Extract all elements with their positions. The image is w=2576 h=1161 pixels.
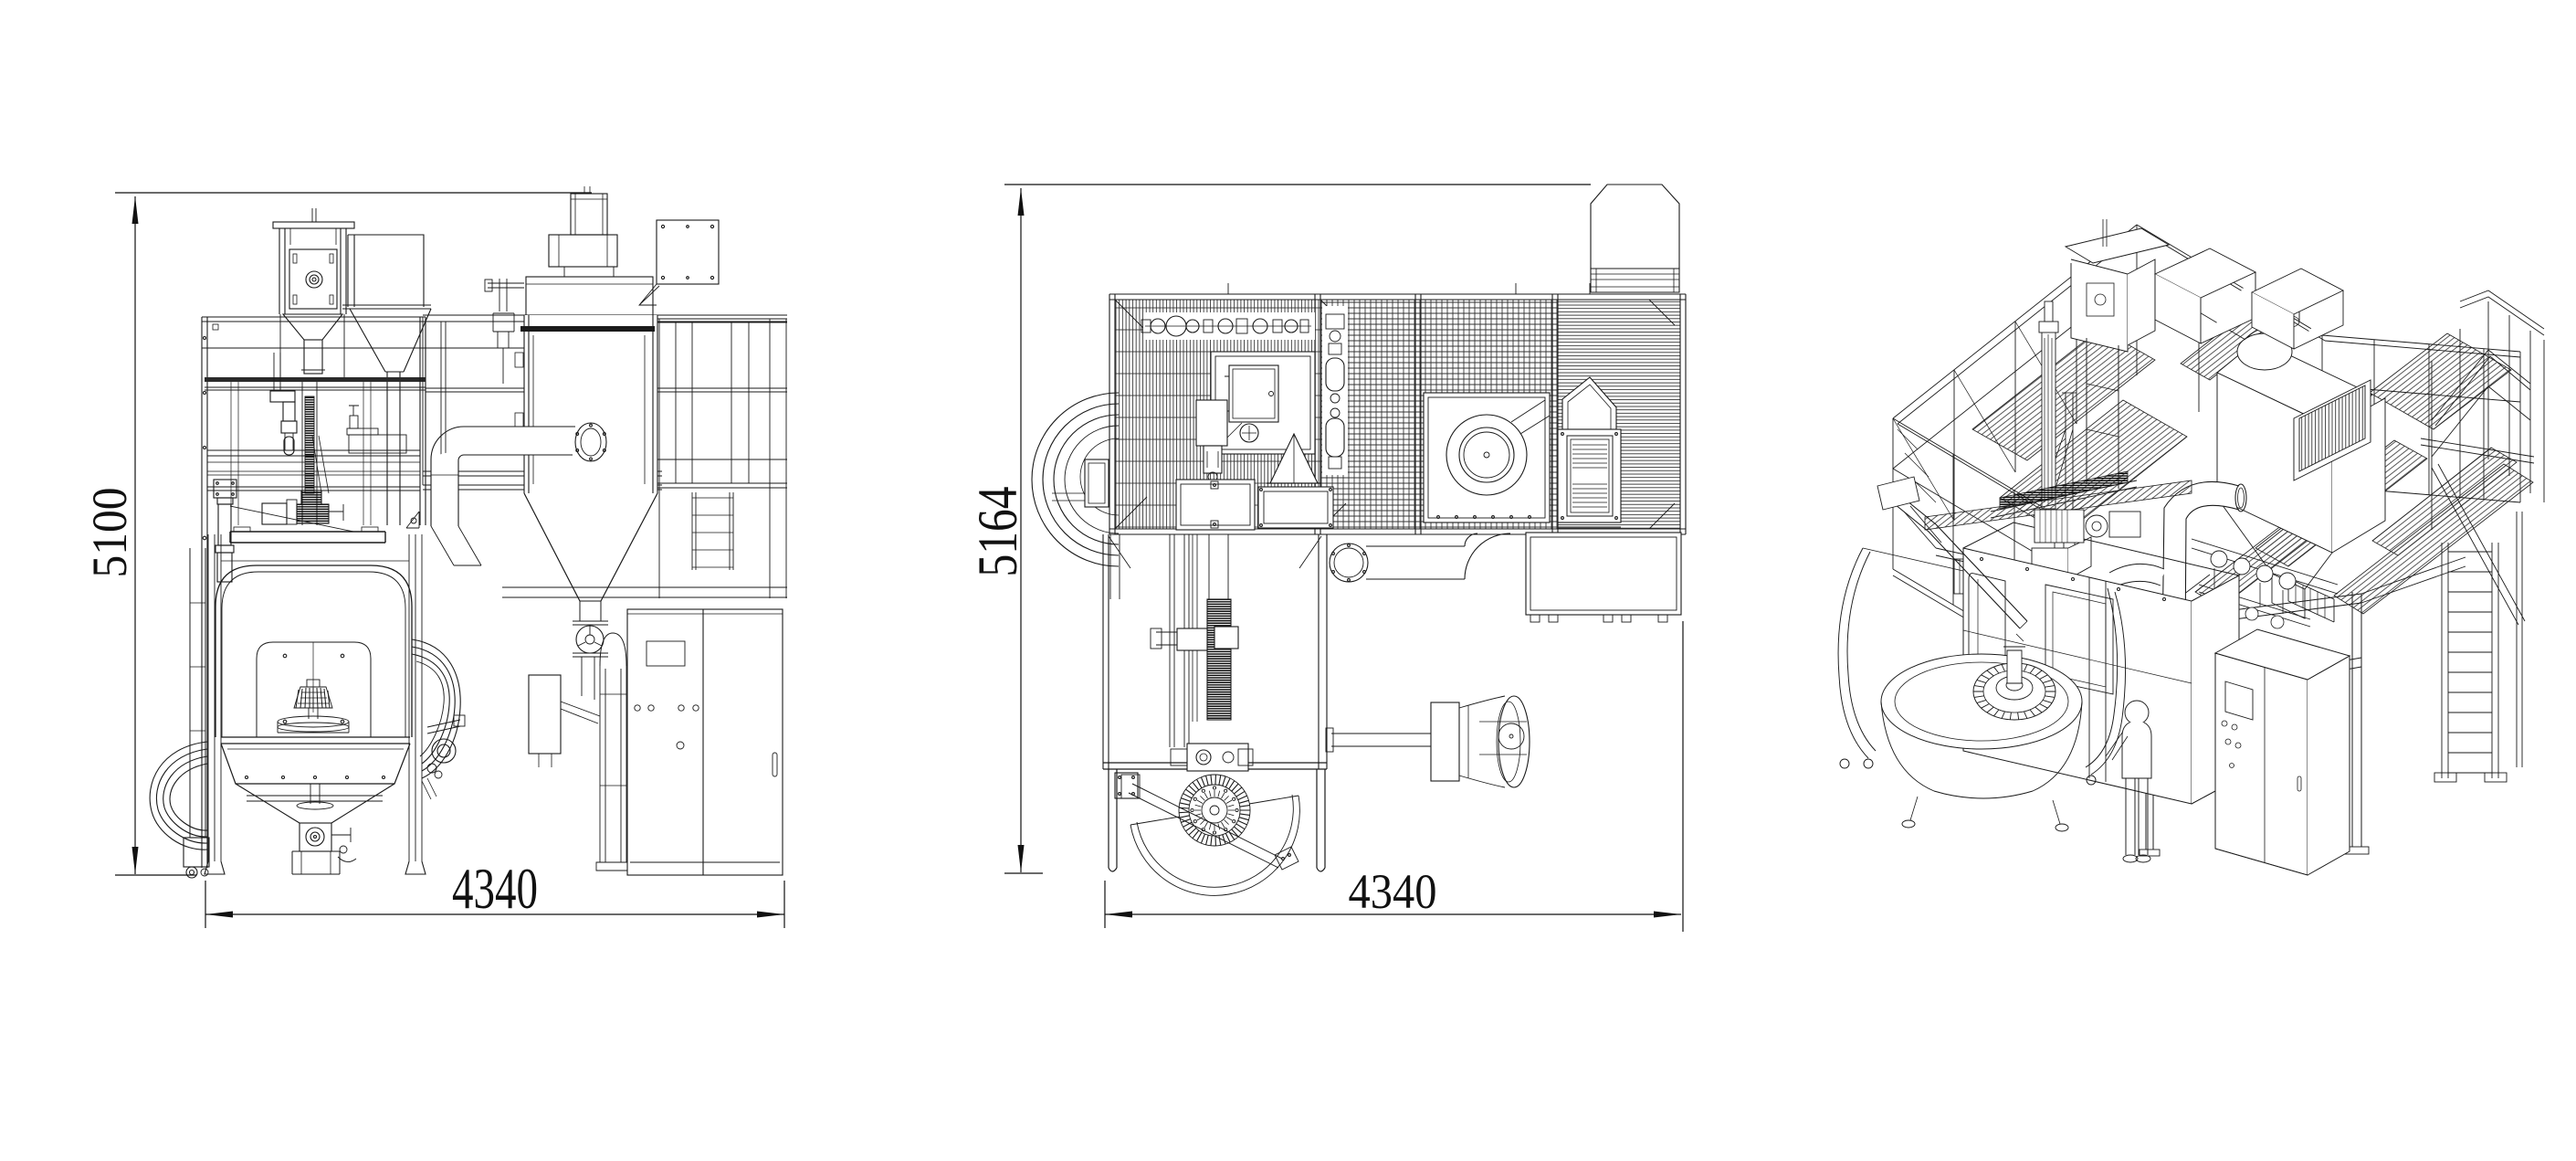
svg-text:5100: 5100 [82, 488, 137, 578]
svg-text:5164: 5164 [968, 487, 1029, 577]
svg-text:4340: 4340 [1349, 864, 1437, 919]
svg-text:4340: 4340 [452, 857, 538, 921]
